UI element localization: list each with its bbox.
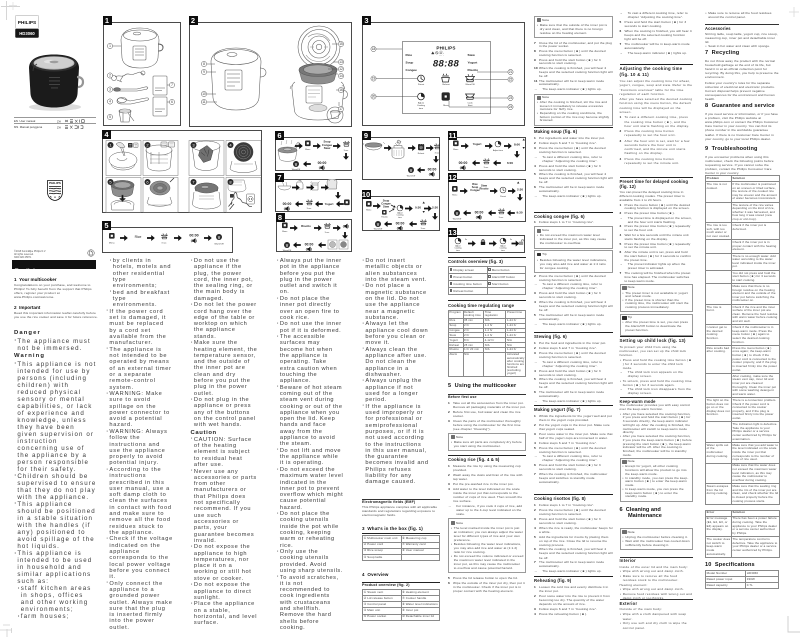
svg-text:HD3060: HD3060 — [19, 31, 35, 36]
svg-text:3 sec: 3 sec — [161, 243, 167, 245]
svg-text:Warm/Off: Warm/Off — [373, 229, 382, 231]
svg-text:Stew: Stew — [382, 205, 389, 209]
svg-text:Warm/Off: Warm/Off — [453, 219, 462, 221]
svg-text:Soup: Soup — [406, 61, 414, 65]
svg-text:3 sec: 3 sec — [307, 208, 312, 210]
svg-text:16: 16 — [339, 88, 343, 92]
svg-text:6: 6 — [171, 100, 173, 104]
svg-text:time: time — [398, 216, 402, 219]
svg-text:Congee: Congee — [406, 68, 418, 72]
svg-text:3s: 3s — [510, 239, 512, 241]
svg-text:3s: 3s — [465, 239, 467, 241]
svg-text:13: 13 — [339, 60, 343, 64]
svg-text:Risotto: Risotto — [480, 187, 489, 191]
svg-text:time: time — [501, 248, 505, 251]
svg-text:00:00: 00:00 — [475, 211, 484, 215]
svg-text:3: 3 — [109, 88, 111, 92]
svg-text:PHILIPS: PHILIPS — [436, 46, 455, 51]
svg-text:88:88: 88:88 — [433, 59, 460, 70]
svg-text:00:00: 00:00 — [318, 161, 327, 165]
svg-text:8: 8 — [203, 62, 205, 66]
svg-text:PHILIPS: PHILIPS — [49, 181, 61, 185]
svg-text:2:30: 2:30 — [431, 206, 437, 210]
svg-text:PHILIPS: PHILIPS — [18, 20, 36, 26]
svg-text:Reheat: Reheat — [417, 152, 424, 155]
svg-text:Cook: Cook — [467, 103, 473, 105]
svg-text:Warm/Off: Warm/Off — [465, 83, 475, 86]
svg-text:Start: Start — [468, 104, 473, 107]
svg-text:Stew: Stew — [468, 53, 476, 57]
svg-text:Menu: Menu — [305, 149, 310, 151]
svg-text:17: 17 — [339, 107, 343, 111]
svg-text:Stew: Stew — [324, 146, 331, 150]
svg-text:Menu: Menu — [109, 243, 115, 245]
svg-text:6:00: 6:00 — [507, 161, 513, 165]
svg-text:00:00: 00:00 — [459, 161, 468, 165]
svg-text:Risotto: Risotto — [468, 68, 479, 72]
svg-text:9: 9 — [203, 70, 205, 74]
svg-text:00:00: 00:00 — [304, 243, 313, 247]
svg-text:3 sec: 3 sec — [499, 217, 504, 219]
svg-text:2: 2 — [109, 74, 111, 78]
svg-text:Rice: Rice — [135, 235, 142, 239]
svg-text:10: 10 — [202, 92, 206, 96]
svg-text:Yogurt: Yogurt — [473, 142, 482, 146]
svg-text:ZH: ZH — [57, 125, 61, 129]
svg-text:7: 7 — [171, 83, 173, 87]
svg-text:18: 18 — [372, 47, 376, 51]
svg-text:22: 22 — [509, 78, 513, 82]
svg-text:2:30: 2:30 — [517, 188, 523, 192]
svg-text:19: 19 — [372, 77, 376, 81]
svg-text:8:00: 8:00 — [514, 143, 520, 147]
svg-text:3 sec: 3 sec — [324, 232, 329, 234]
svg-text:00:00: 00:00 — [283, 202, 292, 206]
svg-text:Menu: Menu — [366, 210, 371, 212]
svg-text:Menu: Menu — [443, 105, 449, 107]
svg-text:15: 15 — [339, 42, 343, 46]
svg-text:Menu: Menu — [452, 195, 457, 197]
svg-text:Warm/Off: Warm/Off — [406, 176, 415, 178]
svg-text:3 sec: 3 sec — [484, 167, 489, 169]
svg-text:time: time — [456, 248, 460, 251]
svg-text:0:30: 0:30 — [414, 206, 420, 210]
svg-text:00:00: 00:00 — [395, 222, 404, 226]
svg-text:20: 20 — [372, 95, 376, 99]
svg-text:Rice: Rice — [406, 53, 413, 57]
svg-text:Preset: Preset — [418, 83, 425, 86]
svg-text:Reheat: Reheat — [442, 83, 449, 86]
svg-text:9:30: 9:30 — [516, 211, 522, 215]
svg-text:21: 21 — [509, 70, 513, 74]
svg-text:Warm/Off: Warm/Off — [282, 250, 291, 251]
svg-text:3 sec: 3 sec — [420, 228, 425, 230]
svg-text:24: 24 — [509, 105, 513, 109]
svg-text:14: 14 — [339, 74, 343, 78]
svg-text:Adjust: Adjust — [418, 102, 424, 105]
svg-text:Risotto: Risotto — [301, 224, 311, 228]
svg-text:Menu: Menu — [453, 149, 458, 151]
svg-text:4: 4 — [109, 100, 111, 104]
svg-text:Menu: Menu — [282, 231, 287, 233]
svg-text:Warm/Off: Warm/Off — [214, 243, 224, 246]
svg-text:3 sec: 3 sec — [434, 153, 439, 155]
svg-text:Warm/Off: Warm/Off — [292, 169, 301, 171]
svg-text:Yogurt: Yogurt — [468, 61, 478, 65]
svg-text:11: 11 — [202, 100, 206, 104]
svg-text:3 sec: 3 sec — [344, 150, 349, 152]
svg-text:23: 23 — [509, 96, 513, 100]
svg-text:Risotto: Risotto — [381, 216, 388, 219]
svg-text:5: 5 — [109, 115, 111, 119]
svg-text:12: 12 — [339, 67, 343, 71]
svg-text:Yogurt: Yogurt — [325, 202, 334, 206]
svg-text:00:00: 00:00 — [189, 234, 198, 238]
svg-text:Adjust time: Adjust time — [493, 149, 504, 152]
svg-text:Cooking: Cooking — [417, 105, 426, 107]
svg-text:Preset: Preset — [500, 195, 506, 198]
svg-text:00:00: 00:00 — [427, 168, 436, 172]
svg-text:1: 1 — [109, 44, 111, 48]
